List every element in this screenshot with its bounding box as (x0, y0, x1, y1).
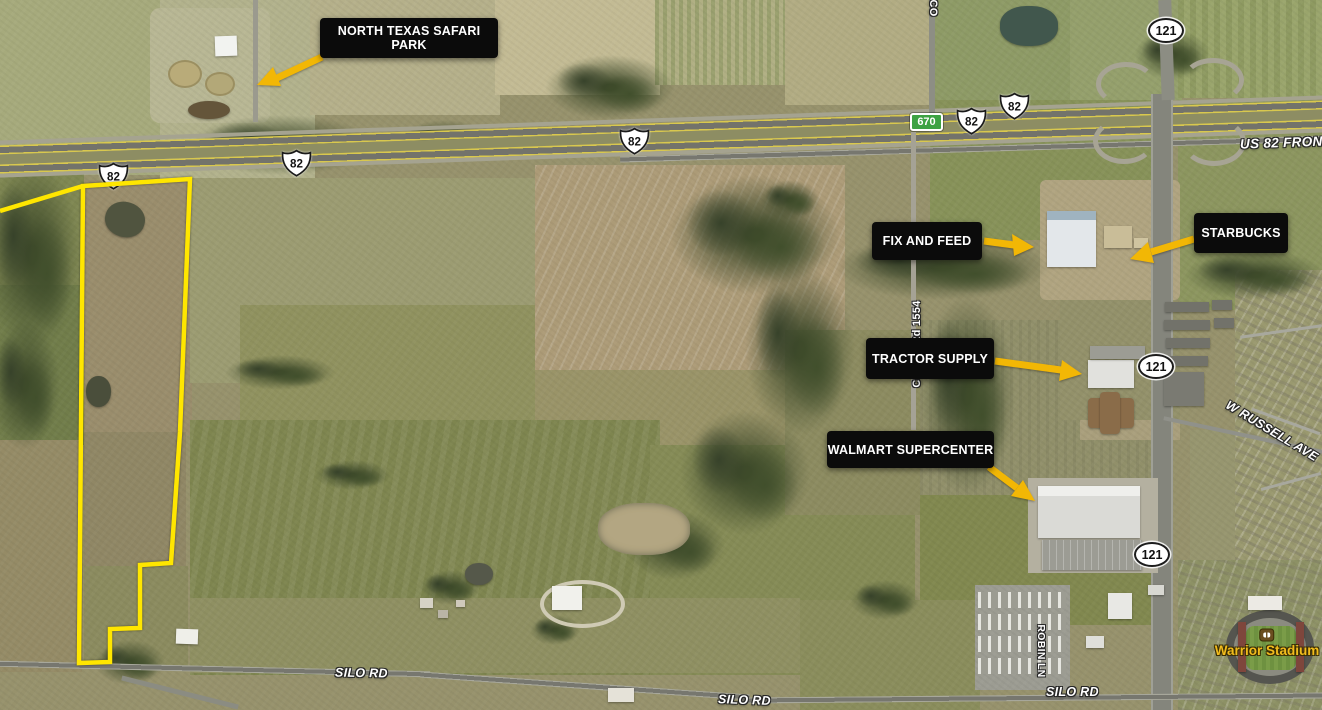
satellite-map: 82 82 82 82 82 121 121 121 670 US 82 FRO… (0, 0, 1322, 710)
arrow-shaft-walmart (989, 467, 1017, 488)
arrowhead-starbucks (1130, 242, 1154, 263)
arrow-shaft-starbucks (1151, 239, 1194, 252)
arrowhead-fix-and-feed (1012, 234, 1034, 256)
arrow-shaft-safari-park (277, 57, 322, 78)
arrowhead-tractor-supply (1059, 360, 1082, 381)
arrow-shaft-fix-and-feed (984, 241, 1014, 245)
arrows-overlay (0, 0, 1322, 710)
arrow-shaft-tractor-supply (995, 361, 1061, 370)
